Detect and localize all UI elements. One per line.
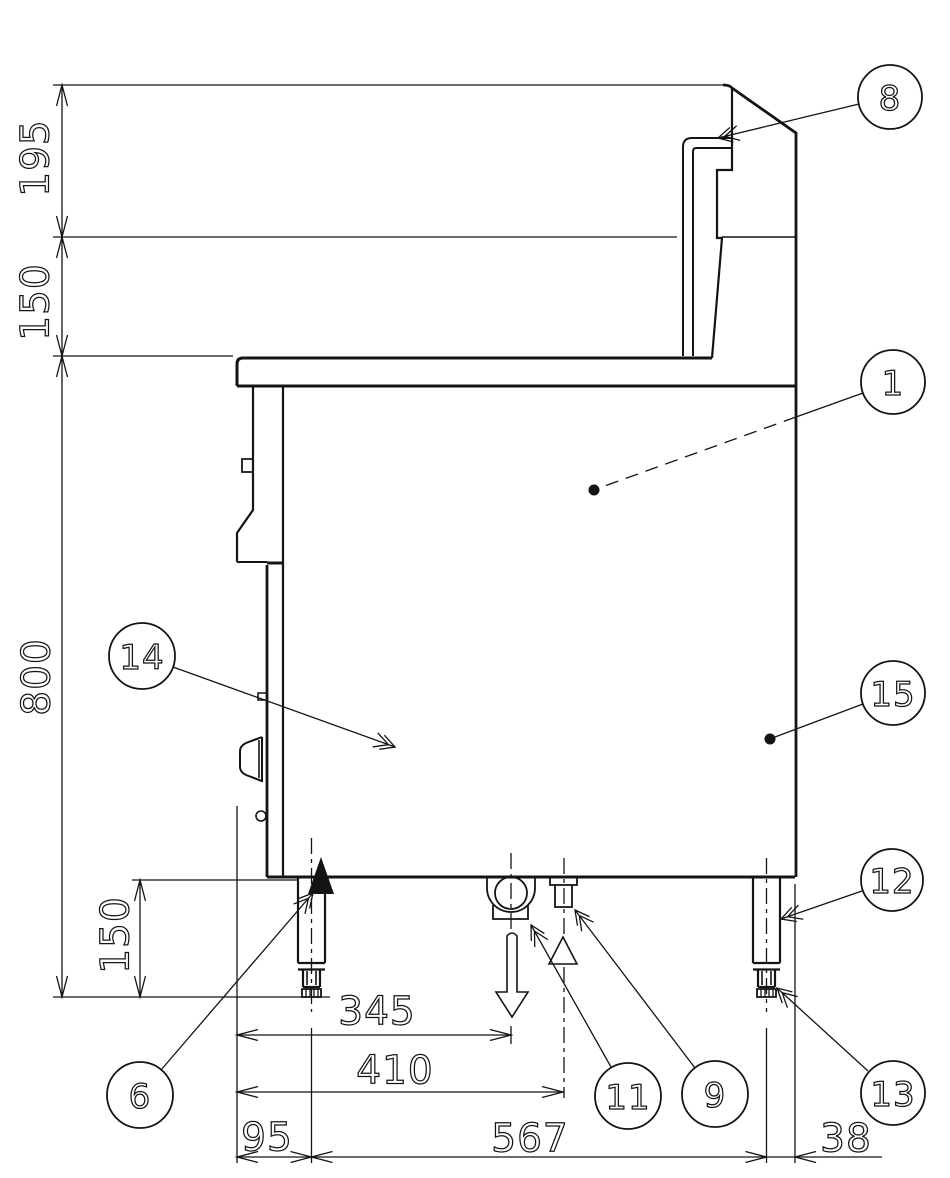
leader-1 (589, 393, 864, 496)
balloon-12: 12 (861, 849, 923, 911)
balloon-15-number: 15 (870, 675, 915, 715)
drawing-sheet: 195 150 800 150 345 410 95 567 38 (0, 0, 950, 1178)
balloon-6-number: 6 (129, 1077, 152, 1117)
leader-1-dot (589, 485, 600, 496)
dim-label-left-leg-inset: 95 (241, 1116, 293, 1161)
balloon-9-number: 9 (704, 1076, 727, 1116)
dim-label-right-leg-inset: 38 (820, 1117, 872, 1162)
side-view-technical-drawing: 195 150 800 150 345 410 95 567 38 (0, 0, 950, 1178)
drain-direction-arrow-icon (496, 933, 528, 1017)
balloon-6: 6 (107, 1062, 173, 1128)
leader-13 (777, 988, 868, 1071)
leader-9 (575, 910, 695, 1068)
balloon-8-number: 8 (879, 79, 902, 119)
control-panel (237, 386, 267, 562)
balloon-14: 14 (109, 623, 175, 689)
balloon-12-number: 12 (869, 862, 914, 902)
balloon-9: 9 (682, 1061, 748, 1127)
leader-12 (781, 891, 862, 919)
dim-label-drain-offset: 345 (338, 990, 415, 1035)
balloon-1: 1 (861, 350, 925, 414)
door-latch (256, 811, 266, 821)
backsplash (712, 85, 796, 877)
balloon-1-number: 1 (882, 364, 905, 404)
leader-15-dot (765, 734, 776, 745)
leader-15 (765, 704, 864, 745)
dim-label-gas-offset: 410 (356, 1049, 433, 1094)
door-handle (240, 737, 262, 781)
leader-11 (531, 925, 611, 1067)
balloon-15: 15 (861, 661, 925, 725)
balloon-11: 11 (595, 1063, 661, 1129)
counter-top (237, 358, 795, 386)
balloon-8: 8 (858, 65, 922, 129)
dim-label-backsplash-lower: 150 (14, 263, 59, 340)
dim-label-leg-height: 150 (94, 896, 139, 973)
balloon-11-number: 11 (605, 1078, 650, 1118)
dim-label-leg-spacing: 567 (491, 1117, 568, 1162)
front-door (240, 563, 283, 877)
gas-inlet-arrow-icon (549, 937, 577, 964)
dim-label-body-height: 800 (15, 638, 60, 715)
balloon-13-number: 13 (870, 1075, 915, 1115)
callout-balloons: 8 1 14 15 12 6 11 9 (107, 65, 925, 1129)
dim-label-backsplash-upper: 195 (14, 119, 59, 196)
leader-8 (718, 104, 859, 138)
balloon-14-number: 14 (119, 638, 164, 678)
main-body (267, 386, 795, 877)
balloon-13: 13 (861, 1061, 925, 1125)
